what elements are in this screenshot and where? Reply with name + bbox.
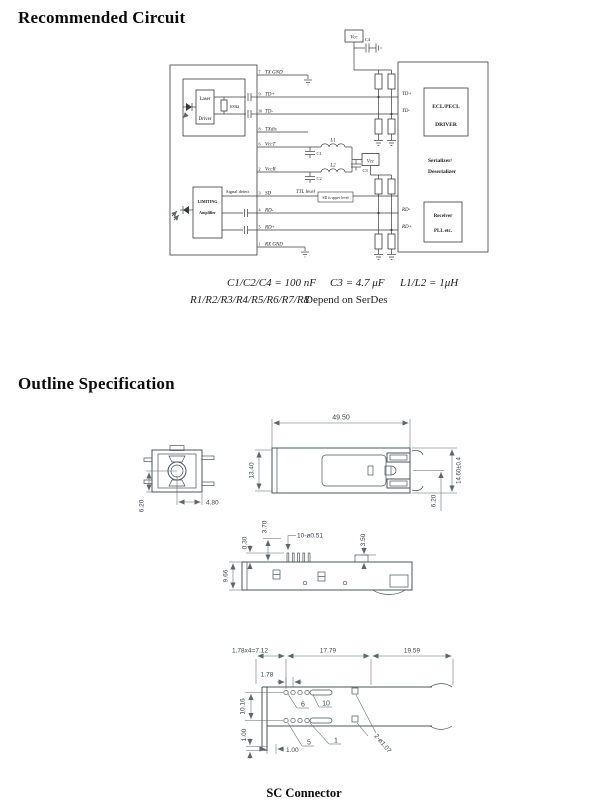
side-lead-dim: 3.70 <box>262 520 269 533</box>
sc-connector-caption: SC Connector <box>204 786 404 801</box>
front-width-dim: 4.80 <box>206 500 219 507</box>
signal-detect-label: Signal detect <box>226 189 250 194</box>
pin-num: 10 <box>258 109 262 114</box>
vcc-mid-label: Vcc <box>367 160 375 165</box>
rd-coupling-capacitors <box>222 209 248 234</box>
serdes-td-plus: TD+ <box>402 92 412 97</box>
bottom-rows-dim: 10.16 <box>240 698 247 715</box>
pin-rdm: 4 RD- <box>259 208 274 214</box>
ttl-level-label: TTL level <box>296 190 316 195</box>
section-title-outline-specification: Outline Specification <box>18 374 175 394</box>
laser-diode-icon <box>183 103 196 118</box>
bottom-pin6-label: 6 <box>301 702 305 709</box>
bottom-pin10-label: 10 <box>322 701 330 708</box>
vcc-top-branch: Vcc C4 <box>345 30 392 70</box>
pin-name: VccT <box>265 143 276 148</box>
bottom-pitch-dim: 1.78x4=7.12 <box>232 648 268 655</box>
pin-name: VccR <box>265 168 276 173</box>
receiver-label-1: Receiver <box>434 214 453 219</box>
pin-name: TX GND <box>265 71 283 76</box>
bottom-view-dimensions: 1.78x4=7.12 17.79 19.59 1.78 10.16 1.00 <box>232 648 453 760</box>
top-overall-height-dim: 14.60±0.4 <box>457 457 463 484</box>
note-resistor-text: Depend on SerDes <box>305 294 387 306</box>
serializer-label-1: Serializer/ <box>428 158 453 164</box>
laser-driver-block: Laser Driver 100Ω <box>183 79 257 136</box>
note-c3: C3 = 4.7 μF <box>330 277 385 289</box>
document-page: { "page": { "section1_title": "Recommend… <box>0 0 608 809</box>
pin-txgnd: 7 TX GND <box>259 70 284 76</box>
pin-rxgnd: 1 RX GND <box>259 242 284 248</box>
pin-vcct: 6 VccT <box>259 142 277 148</box>
limiting-amplifier-block: LIMITING Amplifier Signal detect <box>172 187 250 238</box>
ind-l1-label: L1 <box>329 139 335 144</box>
sd-upper-level-note: SD is upper level <box>322 196 348 200</box>
ind-l2-label: L2 <box>329 164 336 169</box>
laser-resistor-value: 100Ω <box>229 104 240 109</box>
bottom-end-dim: 19.59 <box>404 648 421 655</box>
resistors-note: R1/R2/R3/R4/R5/R6/R7/R8 Depend on SerDes <box>0 294 608 310</box>
bottom-p1-dim: 1.78 <box>261 672 274 679</box>
laser-label-1: Laser <box>199 97 210 102</box>
note-capacitors: C1/C2/C4 = 100 nF <box>227 277 316 289</box>
pin-num: 1 <box>259 242 261 247</box>
pin-num: 6 <box>259 142 261 147</box>
top-view: 49.50 13.40 14.60±0.4 6.20 <box>249 415 463 512</box>
pin-txdis: 8 TXdis <box>259 127 277 133</box>
side-height-dim: 9.66 <box>223 569 230 582</box>
serdes-td-minus: TD- <box>402 109 410 114</box>
amp-label-1: LIMITING <box>198 199 218 204</box>
power-filter-network: C1 C2 L1 L2 Vcc C3 <box>305 139 379 184</box>
serdes-rd-plus: RD+ <box>401 225 412 230</box>
front-height-dim: 6.20 <box>139 499 146 512</box>
bottom-mid-dim: 17.79 <box>320 648 337 655</box>
pin-num: 3 <box>259 191 261 196</box>
side-tab-dim: 3.50 <box>360 533 367 546</box>
td-coupling-capacitors <box>248 93 257 118</box>
amp-label-2: Amplifier <box>199 210 216 215</box>
pin-name: RX GND <box>264 243 283 248</box>
ecl-pecl-label-2: DRIVER <box>435 122 458 128</box>
photodiode-icon <box>172 206 193 220</box>
pin-tdp: 9 TD+ <box>259 92 275 98</box>
cap-c3-label: C3 <box>363 168 369 173</box>
bottom-holes-dim: 2-ø1.07 <box>372 733 392 755</box>
vcc-top-label: Vcc <box>350 36 358 41</box>
bottom-pin1-label: 1 <box>334 738 338 745</box>
pin-rdp: 5 RD+ <box>259 225 276 231</box>
component-values-note: C1/C2/C4 = 100 nF C3 = 4.7 μF L1/L2 = 1μ… <box>0 277 608 293</box>
pin-num: 9 <box>259 92 261 97</box>
note-resistor-list: R1/R2/R3/R4/R5/R6/R7/R8 <box>190 294 309 306</box>
top-port-offset-dim: 6.20 <box>431 494 438 507</box>
signal-lines <box>222 75 398 257</box>
outline-specification-drawing: 6.20 4.80 49.50 13.40 <box>80 406 550 784</box>
side-view: 9.66 0.30 3.70 10-ø0.51 3.50 <box>223 520 413 594</box>
pin-num: 2 <box>259 167 261 172</box>
cap-c1-label: C1 <box>317 151 322 156</box>
cap-c4-label: C4 <box>365 37 371 42</box>
pin-name: TXdis <box>265 128 277 133</box>
serdes-block: ECL/PECL DRIVER TD+ TD- Serializer/ Dese… <box>398 62 488 252</box>
pin-num: 4 <box>259 208 262 213</box>
pin-tdm: 10 TD- <box>258 109 273 115</box>
pin-name: RD+ <box>264 226 275 231</box>
front-view: 6.20 4.80 <box>139 446 220 513</box>
bottom-h100-dim: 1.00 <box>286 747 299 754</box>
cap-c2-label: C2 <box>317 176 322 181</box>
receiver-label-2: PLL etc. <box>434 229 453 234</box>
pin-name: SD <box>265 192 272 197</box>
termination-resistors <box>371 70 397 260</box>
top-body-height-dim: 13.40 <box>249 462 256 479</box>
pin-name: RD- <box>264 209 274 214</box>
bottom-view: 1.78x4=7.12 17.79 19.59 1.78 10.16 1.00 <box>232 648 453 760</box>
bottom-v100-dim: 1.00 <box>241 728 248 741</box>
laser-label-2: Driver <box>198 117 211 122</box>
top-length-dim: 49.50 <box>332 415 350 422</box>
note-inductors: L1/L2 = 1μH <box>400 277 458 289</box>
top-view-dimensions: 49.50 13.40 14.60±0.4 6.20 <box>249 415 463 512</box>
pin-num: 8 <box>259 127 261 132</box>
serdes-rd-minus: RD- <box>401 208 411 213</box>
pin-name: TD- <box>265 110 273 115</box>
pin-vccr: 2 VccR <box>259 167 276 173</box>
serializer-label-2: Deserializer <box>428 169 457 175</box>
pin-num: 7 <box>259 70 261 75</box>
recommended-circuit-diagram: Laser Driver 100Ω LIMITING Amplifier <box>158 22 498 270</box>
bottom-pin5-label: 5 <box>307 740 311 747</box>
side-pin-dim: 0.30 <box>242 536 249 549</box>
ecl-pecl-label-1: ECL/PECL <box>432 104 460 110</box>
side-holes-dim: 10-ø0.51 <box>297 533 323 540</box>
pin-num: 5 <box>259 225 261 230</box>
pin-sd: 3 SD <box>259 191 272 197</box>
pin-name: TD+ <box>265 93 275 98</box>
pin-labels: 7 TX GND 9 TD+ 10 TD- 8 TXdis 6 VccT 2 V… <box>258 70 283 248</box>
